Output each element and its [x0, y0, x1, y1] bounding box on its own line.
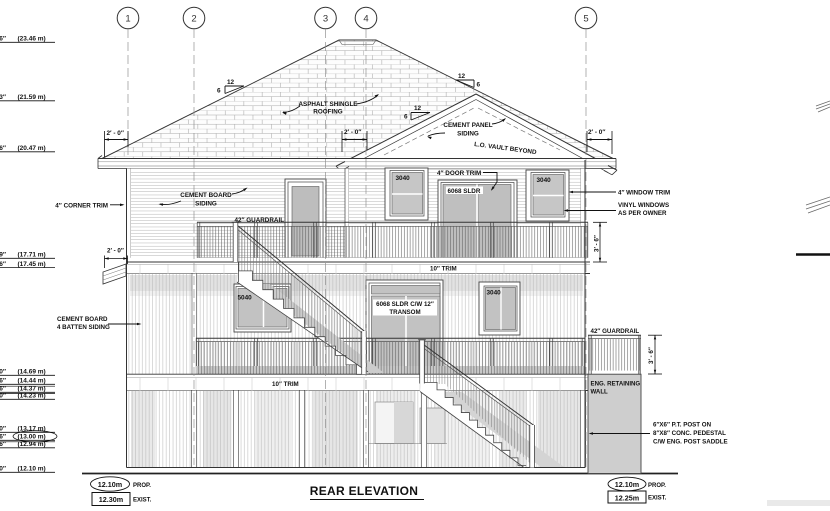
- svg-text:PROP.: PROP.: [133, 483, 151, 489]
- svg-text:8″X8″ CONC. PEDESTAL: 8″X8″ CONC. PEDESTAL: [653, 430, 726, 437]
- svg-text:(17.45 m): (17.45 m): [18, 261, 46, 268]
- svg-text:3040: 3040: [396, 175, 411, 182]
- svg-text:4″ WINDOW TRIM: 4″ WINDOW TRIM: [618, 190, 670, 197]
- svg-text:EXIST.: EXIST.: [648, 496, 667, 502]
- svg-text:(23.46 m): (23.46 m): [18, 36, 46, 43]
- svg-text:6: 6: [477, 82, 481, 89]
- svg-text:ASPHALT SHINGLE: ASPHALT SHINGLE: [298, 101, 357, 108]
- svg-text:4: 4: [363, 14, 368, 25]
- svg-text:12: 12: [227, 79, 235, 86]
- svg-text:C/W ENG. POST SADDLE: C/W ENG. POST SADDLE: [653, 439, 728, 446]
- svg-text:(17.71 m): (17.71 m): [18, 252, 46, 259]
- svg-text:6: 6: [404, 114, 408, 121]
- svg-text:4 BATTEN SIDING: 4 BATTEN SIDING: [57, 324, 110, 331]
- svg-text:(14.44 m): (14.44 m): [18, 378, 46, 385]
- svg-text:3′ - 6″: 3′ - 6″: [648, 347, 655, 364]
- svg-text:12: 12: [414, 105, 422, 112]
- svg-text:9″: 9″: [0, 252, 6, 259]
- svg-text:SIDING: SIDING: [195, 201, 217, 208]
- svg-text:ENG. RETAINING: ENG. RETAINING: [591, 381, 641, 388]
- svg-text:4″ DOOR TRIM: 4″ DOOR TRIM: [437, 170, 481, 177]
- svg-text:0″: 0″: [0, 466, 6, 473]
- svg-text:1: 1: [125, 14, 130, 25]
- svg-text:12.25m: 12.25m: [615, 493, 639, 502]
- svg-text:6068 SLDR: 6068 SLDR: [448, 188, 481, 195]
- svg-text:3′ - 6″: 3′ - 6″: [594, 235, 601, 252]
- svg-text:12: 12: [458, 73, 466, 80]
- svg-text:10″ TRIM: 10″ TRIM: [272, 381, 299, 388]
- svg-text:EXIST.: EXIST.: [133, 498, 152, 504]
- svg-text:CEMENT BOARD: CEMENT BOARD: [180, 192, 232, 199]
- svg-text:3040: 3040: [537, 177, 552, 184]
- svg-text:6″X6″ P.T. POST ON: 6″X6″ P.T. POST ON: [653, 422, 712, 429]
- svg-text:6″: 6″: [0, 261, 6, 268]
- svg-text:ROOFING: ROOFING: [313, 109, 342, 116]
- svg-text:(13.00 m): (13.00 m): [18, 434, 46, 441]
- svg-text:(20.47 m): (20.47 m): [18, 145, 46, 152]
- svg-text:3040: 3040: [487, 290, 502, 297]
- svg-text:PROP.: PROP.: [648, 483, 666, 489]
- svg-text:CEMENT PANEL: CEMENT PANEL: [443, 122, 492, 129]
- svg-text:SIDING: SIDING: [457, 131, 479, 138]
- svg-text:2′ - 0″: 2′ - 0″: [588, 129, 605, 136]
- svg-text:5: 5: [583, 14, 588, 25]
- svg-text:6068 SLDR C/W 12″: 6068 SLDR C/W 12″: [376, 301, 434, 308]
- svg-text:42″ GUARDRAIL: 42″ GUARDRAIL: [235, 217, 285, 224]
- svg-text:VINYL WINDOWS: VINYL WINDOWS: [618, 202, 669, 209]
- svg-text:12.10m: 12.10m: [98, 480, 122, 489]
- svg-text:TRANSOM: TRANSOM: [389, 309, 420, 316]
- svg-text:2′ - 0″: 2′ - 0″: [344, 129, 361, 136]
- svg-text:AS PER OWNER: AS PER OWNER: [618, 210, 667, 217]
- svg-text:(14.69 m): (14.69 m): [18, 369, 46, 376]
- svg-text:12.30m: 12.30m: [99, 495, 123, 504]
- svg-text:0″: 0″: [0, 369, 6, 376]
- svg-text:WALL: WALL: [591, 389, 609, 396]
- svg-text:6″: 6″: [0, 36, 6, 43]
- svg-text:CEMENT BOARD: CEMENT BOARD: [57, 316, 108, 323]
- svg-text:0″: 0″: [0, 426, 6, 433]
- svg-text:2′ - 0″: 2′ - 0″: [107, 248, 124, 255]
- svg-text:10″ TRIM: 10″ TRIM: [430, 265, 457, 272]
- svg-text:42″ GUARDRAIL: 42″ GUARDRAIL: [591, 328, 640, 335]
- svg-text:5040: 5040: [238, 295, 253, 302]
- svg-text:(12.10 m): (12.10 m): [18, 466, 46, 473]
- svg-text:6″: 6″: [0, 434, 6, 441]
- svg-text:2: 2: [191, 14, 196, 25]
- svg-text:12.10m: 12.10m: [615, 480, 639, 489]
- svg-text:6″: 6″: [0, 378, 6, 385]
- svg-text:4″ CORNER TRIM: 4″ CORNER TRIM: [55, 203, 108, 210]
- svg-text:3″: 3″: [0, 94, 6, 101]
- svg-text:6″: 6″: [0, 145, 6, 152]
- svg-text:2′ - 0″: 2′ - 0″: [107, 130, 124, 137]
- svg-text:3: 3: [323, 14, 328, 25]
- svg-text:(21.59 m): (21.59 m): [18, 94, 46, 101]
- svg-text:6: 6: [217, 88, 221, 95]
- svg-text:REAR ELEVATION: REAR ELEVATION: [310, 484, 418, 498]
